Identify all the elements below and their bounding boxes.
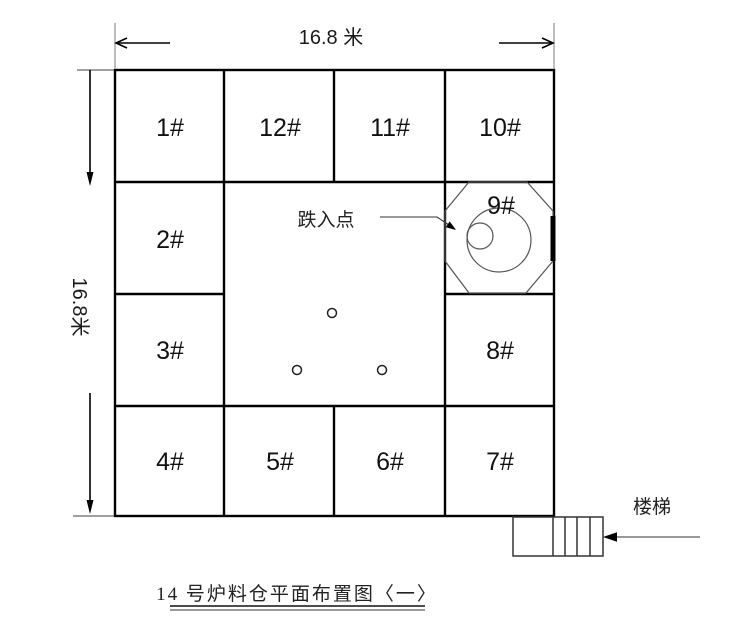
stairs: 楼梯	[513, 496, 700, 556]
left-dimension: 16.8米	[68, 70, 114, 516]
top-dimension-label: 16.8 米	[299, 26, 363, 49]
drop-point-arrowhead-icon	[446, 221, 456, 230]
cell-label-9: 9#	[487, 192, 515, 220]
cell-label-2: 2#	[156, 226, 184, 254]
stairs-label: 楼梯	[633, 496, 671, 518]
cell-label-11: 11#	[370, 114, 410, 142]
caption-text: 14 号炉料仓平面布置图〈一〉	[156, 583, 438, 605]
cell-label-7: 7#	[486, 448, 514, 476]
cell-label-12: 12#	[259, 114, 301, 142]
caption: 14 号炉料仓平面布置图〈一〉	[156, 583, 438, 610]
drop-point-label: 跌入点	[297, 209, 354, 231]
cell-label-1: 1#	[156, 114, 184, 142]
left-dimension-label: 16.8米	[68, 278, 91, 337]
down-arrowhead-upper-icon	[87, 172, 94, 186]
drop-point-leader-line	[380, 217, 449, 225]
cell-label-10: 10#	[479, 114, 521, 142]
cell-label-5: 5#	[266, 448, 294, 476]
port-circle-top	[328, 309, 337, 318]
cell-label-4: 4#	[156, 448, 184, 476]
cell-label-6: 6#	[376, 448, 404, 476]
cell-label-3: 3#	[156, 337, 184, 365]
octagon-small-circle	[467, 223, 493, 249]
top-dimension: 16.8 米	[115, 23, 554, 69]
port-circle-right	[378, 366, 387, 375]
drop-point-callout: 跌入点	[297, 209, 456, 231]
port-circle-left	[293, 366, 302, 375]
cell-label-8: 8#	[486, 337, 514, 365]
down-arrowhead-lower-icon	[87, 500, 94, 514]
center-port-circles	[293, 309, 387, 375]
silo-plan-drawing: 16.8 米 16.8米 跌入点 楼梯	[0, 0, 752, 619]
stairs-arrowhead-icon	[603, 532, 617, 541]
silo-plan-figure: 16.8 米 16.8米 跌入点 楼梯	[0, 0, 752, 619]
